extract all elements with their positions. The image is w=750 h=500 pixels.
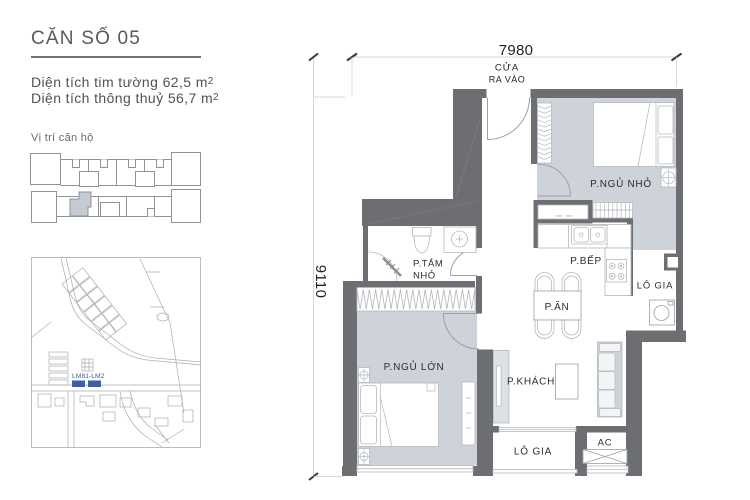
svg-text:7980: 7980 <box>499 42 534 59</box>
svg-text:LÔ GIA: LÔ GIA <box>514 445 552 458</box>
svg-text:P.NGỦ NHỎ: P.NGỦ NHỎ <box>590 177 652 190</box>
svg-text:CỬA: CỬA <box>495 62 519 74</box>
svg-text:P.TẮM: P.TẮM <box>413 259 443 270</box>
svg-text:LÔ GIA: LÔ GIA <box>637 281 673 292</box>
svg-text:P.ĂN: P.ĂN <box>545 300 570 313</box>
svg-text:RA VÀO: RA VÀO <box>489 75 526 85</box>
svg-text:P.BẾP: P.BẾP <box>570 254 602 267</box>
svg-text:AC: AC <box>598 438 613 449</box>
svg-text:P.KHÁCH: P.KHÁCH <box>507 375 555 388</box>
svg-text:NHỎ: NHỎ <box>413 270 436 282</box>
svg-text:LM81-LM2: LM81-LM2 <box>72 373 105 380</box>
svg-text:P.NGỦ LỚN: P.NGỦ LỚN <box>384 360 445 373</box>
svg-text:9110: 9110 <box>312 265 329 298</box>
